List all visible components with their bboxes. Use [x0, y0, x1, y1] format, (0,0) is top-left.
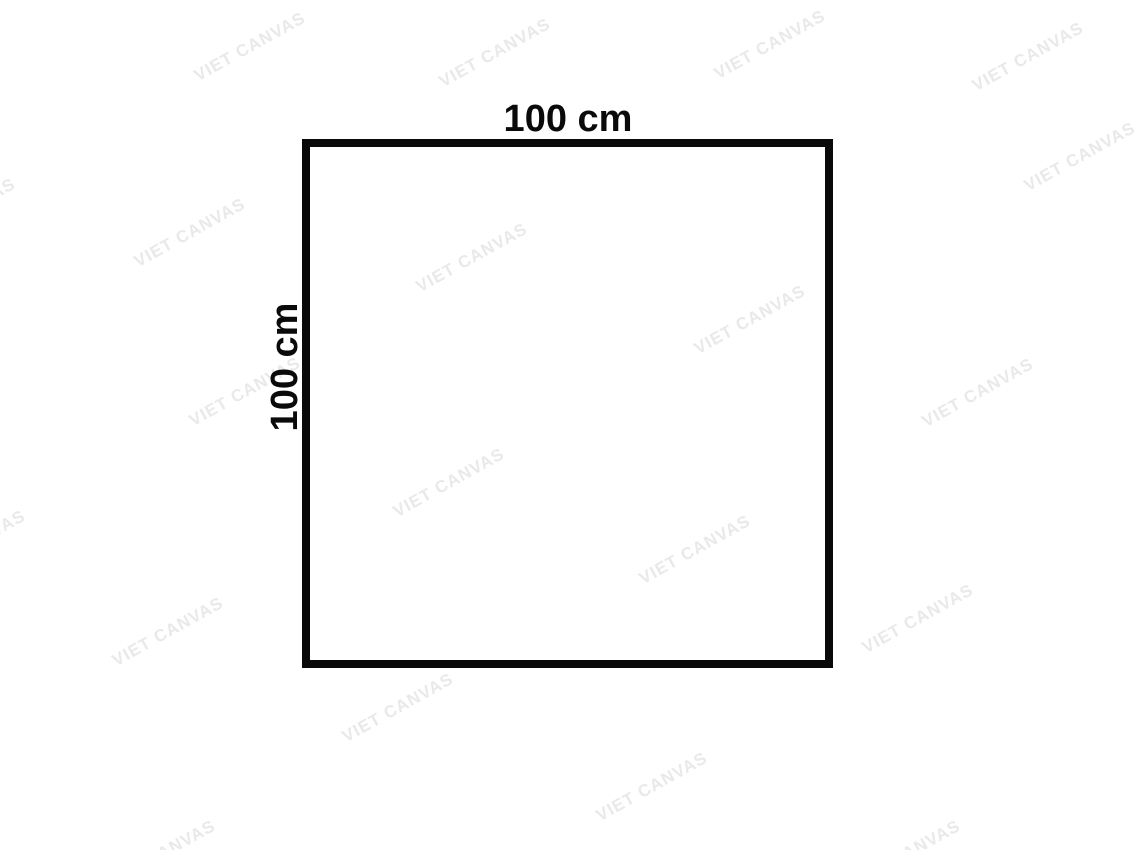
- watermark-text: VIET CANVAS: [0, 174, 19, 252]
- watermark-text: VIET CANVAS: [969, 18, 1087, 96]
- watermark-text: VIET CANVAS: [1021, 118, 1134, 196]
- watermark-text: VIET CANVAS: [593, 748, 711, 826]
- width-dimension-label: 100 cm: [504, 100, 633, 138]
- watermark-text: VIET CANVAS: [131, 194, 249, 272]
- watermark-text: VIET CANVAS: [846, 816, 964, 850]
- canvas-square-outline: [302, 139, 833, 668]
- canvas-size-diagram: VIET CANVASVIET CANVASVIET CANVASVIET CA…: [0, 0, 1134, 850]
- height-dimension-label: 100 cm: [266, 303, 304, 432]
- watermark-text: VIET CANVAS: [109, 593, 227, 671]
- watermark-text: VIET CANVAS: [919, 354, 1037, 432]
- watermark-text: VIET CANVAS: [0, 506, 29, 584]
- watermark-text: VIET CANVAS: [711, 6, 829, 84]
- watermark-text: VIET CANVAS: [191, 8, 309, 86]
- watermark-text: VIET CANVAS: [101, 816, 219, 850]
- watermark-text: VIET CANVAS: [339, 669, 457, 747]
- watermark-text: VIET CANVAS: [859, 580, 977, 658]
- watermark-text: VIET CANVAS: [436, 14, 554, 92]
